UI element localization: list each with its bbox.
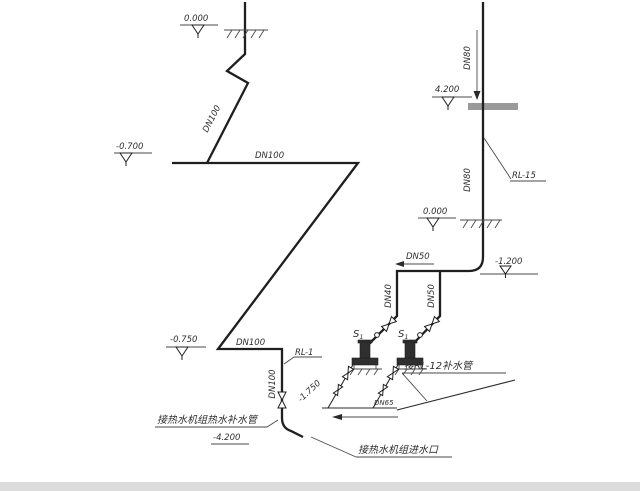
pipe-size-label-suction: DN65 xyxy=(374,399,394,407)
riser-tag-rl1: RL-1 xyxy=(284,348,322,364)
pipe-size-label-top: DN80 xyxy=(463,46,473,70)
elevation-label-diagonal: -1.750 xyxy=(296,379,323,405)
header-size-callout: DN50 xyxy=(395,252,434,267)
union-fitting-icon xyxy=(375,333,380,338)
note-text: 接热水机组进水口 xyxy=(358,444,439,456)
gate-valve-icon xyxy=(425,317,440,332)
elevation-triangle-icon xyxy=(427,218,439,231)
elevation-label: -0.700 xyxy=(116,142,143,152)
left-pipe-system: 0.000 DN100 -0.700 DN100 -0.750 DN100 RL… xyxy=(114,2,358,444)
elevation-marker-minus-1200: -1.200 xyxy=(480,257,538,278)
elevation-label: 0.000 xyxy=(423,207,447,217)
check-valve-icon xyxy=(333,384,342,395)
pipe-size-label-drop-right: DN50 xyxy=(427,284,437,308)
note-text: 接RL-12补水管 xyxy=(404,360,474,372)
pipe-size-label-mid: DN80 xyxy=(463,168,473,192)
gate-valve-icon xyxy=(387,366,398,379)
note-makeup-riser: 接RL-12补水管 xyxy=(402,360,506,401)
pipe-size-label-upper: DN100 xyxy=(255,151,284,161)
pump-tag-1: S1 xyxy=(353,329,364,341)
pipe-size-label-drop-left: DN40 xyxy=(384,284,394,308)
check-valve-icon xyxy=(378,384,387,395)
elevation-marker-minus-4200: -4.200 xyxy=(211,433,249,444)
elevation-triangle-icon xyxy=(120,153,132,166)
bottom-scan-artifact xyxy=(0,482,640,491)
gate-valve-icon xyxy=(278,392,286,408)
union-fitting-icon xyxy=(418,333,423,338)
elevation-label: 4.200 xyxy=(435,85,459,95)
riser-label: RL-1 xyxy=(295,348,313,358)
left-main-pipe-top xyxy=(207,2,248,163)
pump-motor xyxy=(405,342,415,358)
elevation-marker-minus-0750: -0.750 xyxy=(166,335,206,360)
ground-hatch-icon xyxy=(460,220,502,228)
note-text: 接热水机组热水补水管 xyxy=(157,414,259,426)
makeup-water-pipe xyxy=(397,380,515,410)
gate-valve-icon xyxy=(382,317,397,332)
flow-arrow-down-icon xyxy=(474,30,481,100)
flow-arrow-left-icon xyxy=(332,414,398,420)
elevation-triangle-icon xyxy=(192,25,204,38)
elevation-triangle-icon xyxy=(176,347,188,360)
note-hot-water-makeup: 接热水机组热水补水管 xyxy=(155,414,278,427)
ground-hatch-icon xyxy=(350,369,378,375)
pump-base xyxy=(352,358,378,365)
riser-tag-rl15: RL-15 xyxy=(484,138,546,181)
flow-arrow-left-icon xyxy=(395,261,404,267)
elevation-triangle-icon xyxy=(500,266,511,278)
floor-slab xyxy=(468,103,518,110)
gate-valve-icon xyxy=(342,366,353,379)
riser-label: RL-15 xyxy=(512,171,536,181)
pump-tag-2: S1 xyxy=(398,329,409,341)
elevation-label: 0.000 xyxy=(184,14,208,24)
drawing-canvas: 0.000 DN100 -0.700 DN100 -0.750 DN100 RL… xyxy=(0,0,640,491)
elevation-label: -0.750 xyxy=(170,335,197,345)
pipe-size-label-lower: DN100 xyxy=(236,338,265,348)
pump-motor xyxy=(360,342,370,358)
elevation-triangle-icon xyxy=(442,97,454,110)
elevation-marker-zero-right: 0.000 xyxy=(418,207,456,231)
pipe-size-label-diagonal: DN100 xyxy=(201,104,223,135)
right-pipe-system: DN80 4.200 RL-15 DN80 0.000 DN50 xyxy=(311,2,546,457)
left-main-pipe-run xyxy=(172,163,358,437)
elevation-marker-top-left: 0.000 xyxy=(180,14,218,38)
elevation-label: -4.200 xyxy=(213,433,240,443)
pipe-size-label-vertical: DN100 xyxy=(268,369,278,398)
note-unit-inlet: 接热水机组进水口 xyxy=(311,437,452,457)
pump-unit-1 xyxy=(350,340,382,375)
pipe-size-label-header: DN50 xyxy=(406,252,430,262)
elevation-marker-minus-0700: -0.700 xyxy=(114,142,152,166)
elevation-marker-4200: 4.200 xyxy=(432,85,472,110)
piping-axonometric-drawing: 0.000 DN100 -0.700 DN100 -0.750 DN100 RL… xyxy=(0,0,640,491)
